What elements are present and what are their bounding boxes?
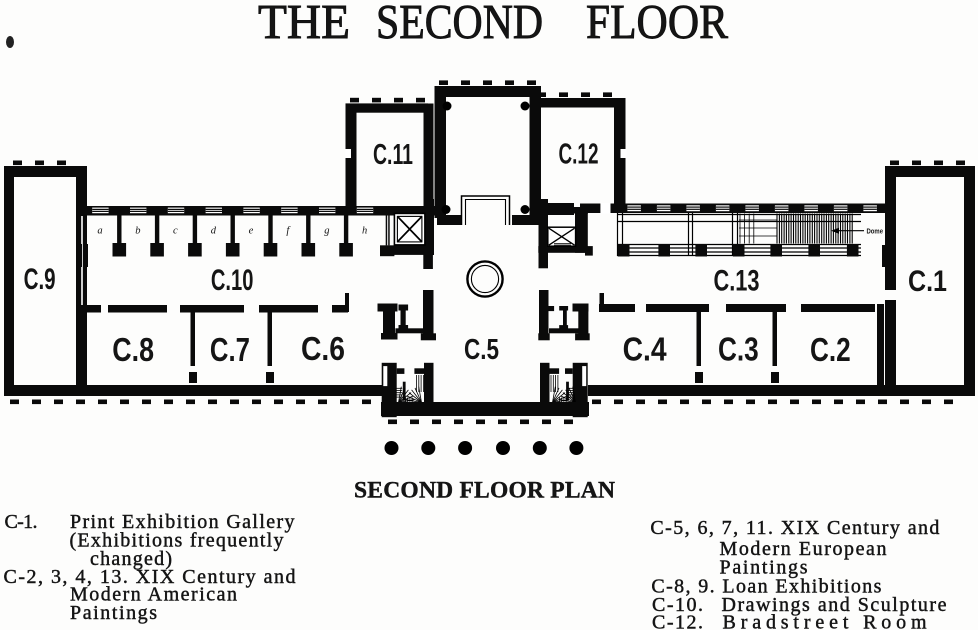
svg-text:THE: THE	[258, 0, 350, 49]
svg-text:C.5: C.5	[464, 334, 499, 366]
svg-text:C.2: C.2	[810, 331, 851, 368]
svg-text:SECOND: SECOND	[376, 0, 543, 49]
svg-text:C-1.: C-1.	[5, 511, 38, 533]
svg-text:C.13: C.13	[714, 265, 760, 298]
svg-text:C.9: C.9	[24, 263, 56, 296]
svg-text:C-12.: C-12.	[652, 612, 703, 630]
svg-text:C-5, 6, 7, 11. XIX Century and: C-5, 6, 7, 11. XIX Century and	[650, 517, 939, 539]
svg-text:d: d	[211, 226, 217, 237]
svg-text:b: b	[135, 226, 140, 237]
svg-text:C.1: C.1	[908, 265, 947, 298]
svg-text:c: c	[173, 226, 178, 237]
svg-text:C.10: C.10	[211, 264, 254, 297]
svg-text:FLOOR: FLOOR	[586, 0, 729, 49]
svg-text:g: g	[324, 226, 329, 237]
svg-text:C.4: C.4	[623, 331, 668, 368]
svg-text:C.8: C.8	[112, 331, 154, 368]
svg-text:e: e	[249, 226, 254, 237]
svg-text:h: h	[362, 226, 367, 237]
svg-text:C.12: C.12	[559, 139, 599, 171]
svg-text:C.3: C.3	[718, 331, 759, 368]
svg-text:a: a	[97, 226, 102, 237]
svg-text:SECOND FLOOR PLAN: SECOND FLOOR PLAN	[354, 478, 615, 504]
svg-text:C.6: C.6	[301, 330, 345, 367]
svg-text:Paintings: Paintings	[70, 602, 157, 624]
svg-text:C.7: C.7	[210, 331, 250, 368]
svg-text:C.11: C.11	[373, 139, 413, 171]
svg-text:Dome: Dome	[867, 229, 884, 236]
